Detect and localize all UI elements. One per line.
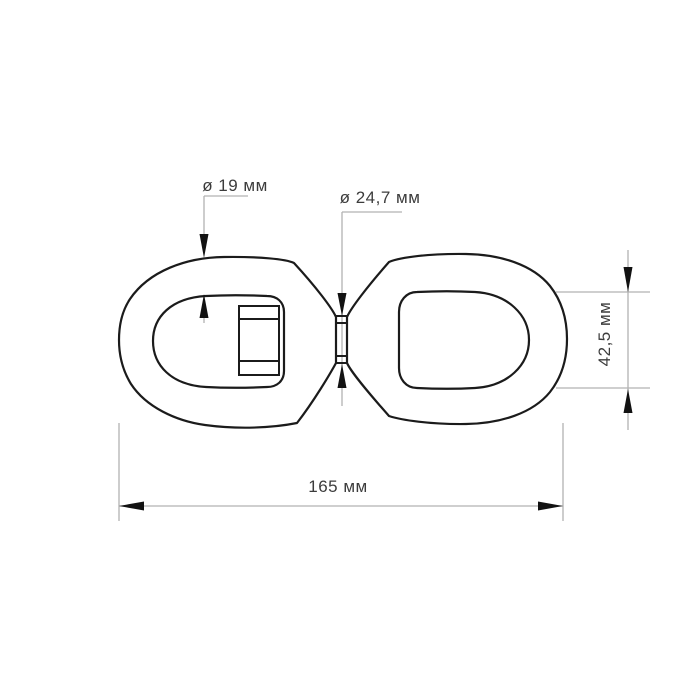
pin-dim-arrow-down-icon: [338, 293, 347, 316]
eye-height-arrow-bottom-icon: [624, 389, 633, 413]
dimension-labels: ø 19 мм ø 24,7 мм 42,5 мм 165 мм: [202, 176, 614, 496]
eye-height-arrow-top-icon: [624, 267, 633, 292]
swivel-technical-drawing: ø 19 мм ø 24,7 мм 42,5 мм 165 мм: [0, 0, 700, 700]
pin-dim-arrow-up-icon: [338, 364, 347, 388]
rod-dim-arrow-up-icon: [200, 294, 209, 318]
left-eye-outer-contour: [119, 257, 336, 428]
swivel-body-section: [239, 306, 279, 375]
drawing-canvas: ø 19 мм ø 24,7 мм 42,5 мм 165 мм: [0, 0, 700, 700]
eye-height-label: 42,5 мм: [595, 302, 614, 367]
left-eye-inner-contour: [153, 295, 284, 388]
pin-diameter-label: ø 24,7 мм: [340, 188, 421, 207]
length-arrow-right-icon: [538, 502, 563, 511]
rod-dim-arrow-down-icon: [200, 234, 209, 258]
overall-length-label: 165 мм: [308, 477, 367, 496]
rod-diameter-label: ø 19 мм: [202, 176, 268, 195]
length-arrow-left-icon: [119, 502, 144, 511]
right-eye-inner-contour: [399, 291, 529, 389]
swivel-outline: [119, 254, 567, 428]
right-eye-outer-contour: [347, 254, 567, 424]
construction-lines: [119, 196, 650, 521]
dimension-arrows: [119, 234, 633, 511]
